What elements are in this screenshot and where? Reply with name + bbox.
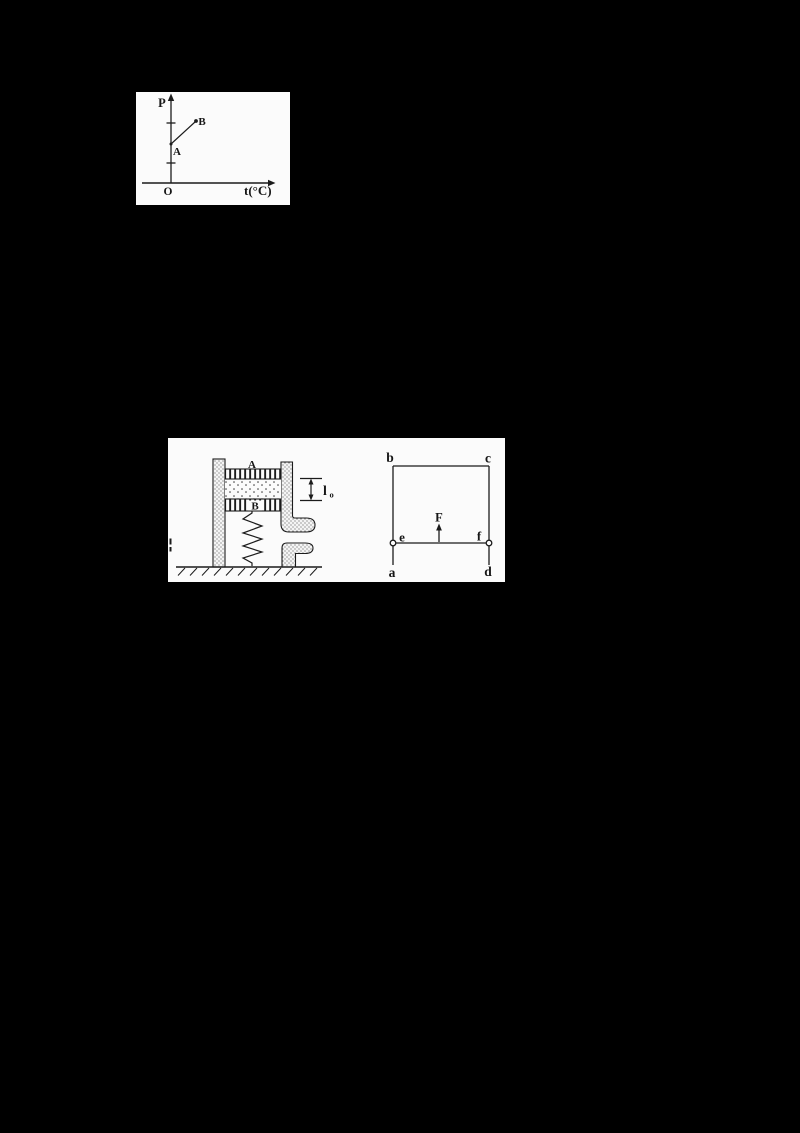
piston-b-label: B xyxy=(251,501,259,513)
corner-c-label: c xyxy=(485,451,491,466)
piston-a-label: A xyxy=(248,459,256,471)
scanned-exam-page: { "colors": { "page_bg": "#000000", "fig… xyxy=(0,0,800,1133)
scan-artifact xyxy=(170,547,172,552)
corner-b-label: b xyxy=(386,450,394,465)
ground-hatching xyxy=(178,568,317,576)
spring xyxy=(243,511,262,566)
force-label: F xyxy=(435,511,443,525)
point-b-label: B xyxy=(198,116,206,128)
figure-apparatus-and-rectangle: A B l o b c e f xyxy=(168,438,505,582)
point-f-label: f xyxy=(477,529,482,544)
gas-length-label: l xyxy=(323,484,327,499)
apparatus-canvas: A B l o b c e f xyxy=(168,438,505,582)
scan-artifact xyxy=(170,539,172,545)
y-axis-label: P xyxy=(158,96,166,110)
hinge-f xyxy=(486,540,492,546)
point-e-label: e xyxy=(399,530,405,545)
point-a-label: A xyxy=(173,146,181,158)
cylinder-left-wall xyxy=(213,459,225,567)
corner-d-label: d xyxy=(484,564,492,579)
y-axis-arrow-icon xyxy=(168,94,174,102)
origin-label: O xyxy=(164,186,173,198)
pt-graph-canvas: P t(°C) O A B xyxy=(136,92,290,205)
hinge-e xyxy=(390,540,396,546)
corner-a-label: a xyxy=(389,565,396,580)
dimension-arrow-up-icon xyxy=(309,479,314,485)
force-arrow-head-icon xyxy=(436,524,442,531)
dimension-arrow-down-icon xyxy=(309,495,314,501)
tube-lower-elbow xyxy=(282,543,313,567)
gas-length-subscript: o xyxy=(330,490,334,500)
x-axis-label: t(°C) xyxy=(244,183,272,198)
figure-pt-graph: P t(°C) O A B xyxy=(136,92,290,205)
gas-column xyxy=(225,479,281,499)
point-b xyxy=(194,119,198,123)
segment-ab xyxy=(171,122,195,144)
